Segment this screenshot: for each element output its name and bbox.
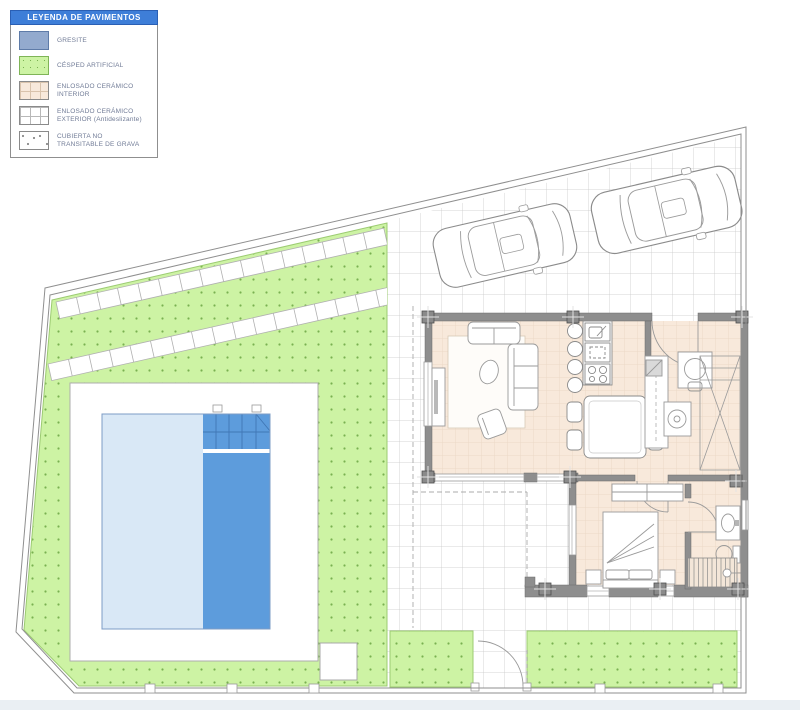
washbasin (716, 506, 740, 540)
ceramico-exterior-swatch (19, 106, 49, 125)
wardrobe (612, 484, 683, 501)
legend-item-label: CUBIERTA NO TRANSITABLE DE GRAVA (57, 133, 149, 148)
nightstand-left (586, 570, 601, 584)
legend-item-gresite: GRESITE (11, 28, 157, 53)
oven (585, 343, 610, 362)
cesped-swatch (19, 56, 49, 75)
pool-step-edge (203, 449, 270, 453)
legend-item-label: ENLOSADO CERÁMICO EXTERIOR (Antideslizan… (57, 108, 149, 123)
site-plan-page: LEYENDA DE PAVIMENTOS GRESITE CÉSPED ART… (0, 0, 800, 710)
tv-unit (432, 368, 445, 426)
cooktop (585, 364, 610, 384)
legend-item-ceramico-exterior: ENLOSADO CERÁMICO EXTERIOR (Antideslizan… (11, 103, 157, 128)
pool-skimmer-2 (252, 405, 261, 412)
pool-shallow-zone (102, 414, 203, 629)
legend-item-label: ENLOSADO CERÁMICO INTERIOR (57, 83, 149, 98)
sofa (508, 344, 538, 410)
page-edge-strip (0, 700, 800, 710)
legend-item-grava: CUBIERTA NO TRANSITABLE DE GRAVA (11, 128, 157, 153)
legend-item-cesped: CÉSPED ARTIFICIAL (11, 53, 157, 78)
grava-swatch (19, 131, 49, 150)
legend-body: GRESITE CÉSPED ARTIFICIAL ENLOSADO CERÁM… (10, 25, 158, 158)
grass-strip-south-2 (527, 631, 737, 687)
legend-item-label: CÉSPED ARTIFICIAL (57, 62, 124, 69)
ceramico-interior-swatch (19, 81, 49, 100)
dining-table (584, 396, 646, 458)
washing-machine (664, 402, 691, 436)
pool-gresite-zone (203, 414, 270, 629)
nightstand-right (660, 570, 675, 584)
loveseat (468, 322, 520, 344)
grass-strip-south-1 (390, 631, 473, 687)
pavements-legend: LEYENDA DE PAVIMENTOS GRESITE CÉSPED ART… (10, 10, 158, 158)
legend-item-ceramico-interior: ENLOSADO CERÁMICO INTERIOR (11, 78, 157, 103)
laundry-sink (678, 352, 712, 391)
legend-title: LEYENDA DE PAVIMENTOS (10, 10, 158, 25)
utility-pad (320, 643, 357, 680)
swimming-pool (102, 405, 270, 629)
pool-skimmer-1 (213, 405, 222, 412)
kitchen-sink (585, 323, 610, 341)
gresite-swatch (19, 31, 49, 50)
legend-item-label: GRESITE (57, 37, 87, 44)
bed (603, 512, 658, 588)
living-room (432, 322, 538, 440)
